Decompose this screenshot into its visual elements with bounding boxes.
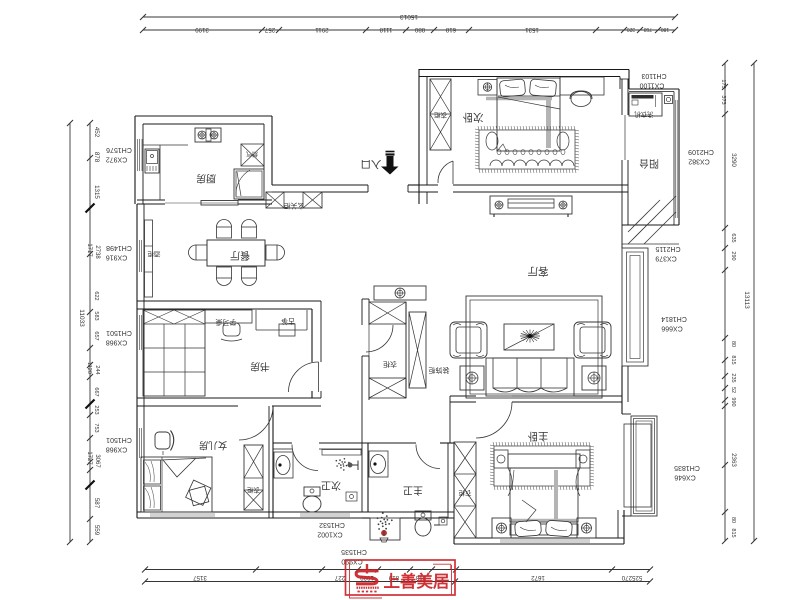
svg-text:阳台: 阳台 [639,157,659,170]
svg-text:52: 52 [730,387,736,393]
svg-text:587: 587 [93,498,100,509]
svg-text:768: 768 [644,26,653,32]
svg-text:厨房: 厨房 [196,172,216,185]
svg-text:175: 175 [720,79,726,88]
svg-text:CX916: CX916 [106,254,128,261]
svg-text:CH1501: CH1501 [106,329,132,336]
svg-text:80: 80 [730,517,736,523]
svg-text:CH1814: CH1814 [661,315,687,322]
svg-text:3067: 3067 [94,454,100,468]
svg-text:2363: 2363 [730,453,737,467]
svg-text:1672: 1672 [531,574,545,581]
svg-text:257: 257 [264,26,275,33]
svg-text:253: 253 [93,405,99,414]
svg-text:CX666: CX666 [661,325,683,332]
svg-text:657: 657 [93,331,99,340]
svg-text:CH1498: CH1498 [106,244,132,251]
svg-text:玄关柜: 玄关柜 [284,202,305,211]
svg-text:2738: 2738 [94,245,100,259]
svg-text:180: 180 [661,26,670,32]
svg-text:书房: 书房 [250,360,270,373]
svg-text:装饰柜: 装饰柜 [429,366,450,375]
svg-text:CH1535: CH1535 [341,548,367,555]
svg-text:635: 635 [730,233,736,242]
svg-text:3157: 3157 [193,574,207,581]
svg-text:1727: 1727 [86,451,92,465]
svg-text:320: 320 [627,26,636,32]
svg-text:CH1835: CH1835 [674,464,700,471]
svg-text:815: 815 [730,355,736,364]
svg-text:CX972: CX972 [106,156,128,163]
svg-text:CX382: CX382 [688,158,710,165]
svg-text:次卫: 次卫 [321,479,341,492]
svg-text:373: 373 [720,95,726,104]
svg-text:990: 990 [730,397,736,406]
svg-text:244: 244 [94,365,100,374]
svg-text:80: 80 [730,341,736,347]
svg-text:主卫: 主卫 [403,484,423,496]
svg-text:1120: 1120 [86,362,92,374]
svg-text:入口: 入口 [361,158,382,170]
svg-text:11033: 11033 [78,309,85,327]
svg-text:878: 878 [93,152,100,163]
svg-text:客厅: 客厅 [528,265,549,278]
svg-text:洗衣机: 洗衣机 [634,111,654,120]
svg-text:15013: 15013 [400,13,418,20]
svg-text:880: 880 [414,26,425,33]
svg-text:主卧: 主卧 [527,430,548,443]
svg-text:餐厅: 餐厅 [230,249,250,262]
svg-text:CH1532: CH1532 [319,521,345,528]
svg-text:CX968: CX968 [106,446,128,453]
svg-text:622: 622 [93,291,99,300]
svg-text:583: 583 [93,311,99,320]
svg-text:290: 290 [730,251,736,260]
svg-text:CX990: CX990 [341,558,363,565]
svg-text:CX968: CX968 [106,339,128,346]
svg-text:1531: 1531 [525,26,539,33]
svg-text:525270: 525270 [621,574,642,581]
svg-text:学习桌: 学习桌 [216,318,237,327]
svg-text:衣柜: 衣柜 [383,360,397,369]
svg-text:CX1002: CX1002 [317,531,342,538]
svg-text:667: 667 [93,387,99,396]
svg-text:女儿房: 女儿房 [199,439,228,451]
svg-text:1717: 1717 [86,243,92,257]
svg-text:CX1100: CX1100 [640,82,665,89]
svg-text:559: 559 [93,525,100,536]
svg-text:CH1103: CH1103 [641,72,666,79]
svg-text:燃气: 燃气 [246,150,258,158]
svg-text:CH1576: CH1576 [106,146,132,153]
svg-text:618: 618 [445,26,456,33]
svg-text:次卧: 次卧 [462,111,483,124]
svg-text:上善美居: 上善美居 [384,571,450,591]
svg-text:古筝: 古筝 [281,317,295,326]
svg-text:815: 815 [730,528,736,537]
svg-text:衣柜: 衣柜 [458,489,472,498]
svg-text:衣柜: 衣柜 [247,486,261,495]
svg-text:235: 235 [730,373,736,382]
svg-text:1315: 1315 [93,185,100,199]
svg-text:452: 452 [93,127,100,138]
svg-text:753: 753 [93,423,99,432]
svg-text:CX646: CX646 [674,474,696,481]
svg-text:13113: 13113 [743,291,750,309]
svg-text:衣柜: 衣柜 [434,111,448,120]
svg-text:3290: 3290 [730,153,737,167]
svg-text:酒柜: 酒柜 [147,250,161,259]
svg-text:2911: 2911 [315,26,329,33]
svg-text:227: 227 [334,574,345,581]
svg-text:CX379: CX379 [655,255,677,262]
svg-text:3199: 3199 [195,26,209,33]
svg-text:CH1501: CH1501 [106,436,132,443]
svg-text:1118: 1118 [379,26,392,33]
svg-text:CH2115: CH2115 [655,245,680,252]
svg-text:CH2109: CH2109 [688,148,714,155]
